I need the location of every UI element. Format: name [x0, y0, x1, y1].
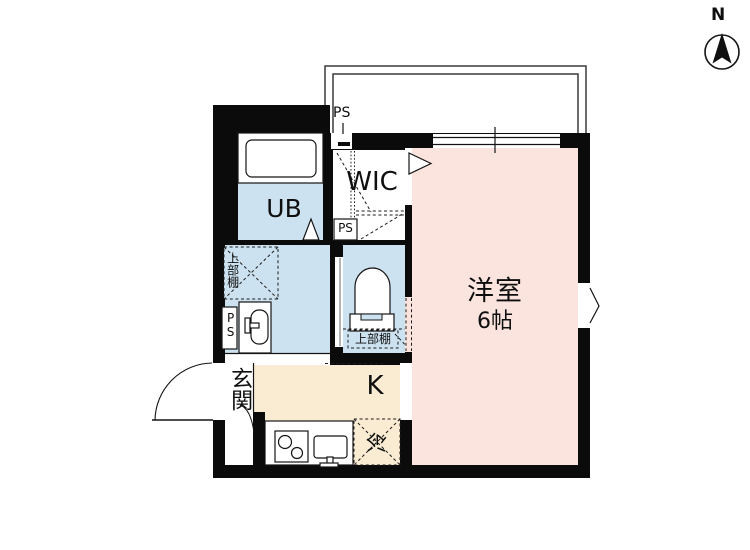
washbasin-faucet-icon [245, 318, 250, 333]
toilet-bowl-icon [355, 268, 390, 316]
kitchen-label: K [345, 373, 405, 400]
western-room-label: 洋室 6帖 [412, 278, 578, 333]
ps-top-label: PS [333, 106, 350, 121]
balcony-outline [325, 66, 586, 142]
north-compass-icon [705, 33, 739, 69]
side-window [578, 283, 590, 328]
entrance-door-swing-arc [155, 363, 212, 420]
upper-shelf-toilet-label: 上部棚 [349, 333, 397, 346]
ps-wic-label: PS [334, 222, 357, 235]
western-room-name: 洋室 [412, 278, 578, 306]
unit-bath-label: UB [244, 196, 324, 222]
western-room-size: 6帖 [412, 310, 578, 333]
ps-left-label: PS [224, 311, 237, 339]
wic-label: WIC [336, 169, 408, 196]
upper-shelf-washroom-label: 上部棚 [226, 252, 239, 288]
entrance-door-gap [213, 363, 225, 420]
toilet-door-gap [335, 257, 343, 347]
side-window-casement-icon [590, 288, 599, 323]
top-window [433, 134, 560, 148]
north-label: N [711, 7, 733, 25]
sink-icon [314, 436, 347, 458]
entrance-label: 玄関 [228, 367, 251, 411]
floor-plan-drawing [0, 0, 750, 550]
bathtub-icon [246, 140, 316, 177]
pipe-space-top-gap [331, 133, 352, 149]
refrigerator-label: 冷 [354, 419, 400, 465]
floor-plan: N PS WIC UB 上部棚 PS PS 上部棚 洋室 6帖 K 玄関 冷 [0, 0, 750, 550]
